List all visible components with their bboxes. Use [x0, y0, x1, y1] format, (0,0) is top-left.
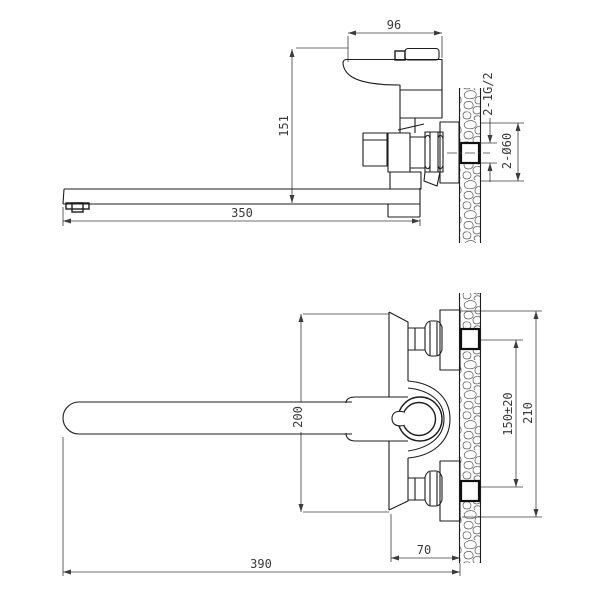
- faucet-technical-drawing: 96 151 350 2-1G/2 2-Ø60: [0, 0, 600, 600]
- faucet-plan-geometry: [63, 310, 479, 521]
- side-view: 96 151 350 2-1G/2 2-Ø60: [63, 18, 524, 243]
- spout-plan: [63, 402, 352, 434]
- dim-200: 200: [291, 314, 389, 512]
- dim-label-390: 390: [250, 557, 272, 571]
- wall-flange-top: [440, 310, 460, 370]
- body-neck: [398, 118, 424, 133]
- inlet-tube-top: [408, 328, 425, 350]
- eccentric-connector: [424, 172, 440, 186]
- dim-350: 350: [63, 206, 420, 226]
- union-body: [388, 133, 410, 172]
- dim-label-200: 200: [291, 406, 305, 428]
- wall-fitting-top: [461, 329, 479, 349]
- dim-label-151: 151: [277, 115, 291, 137]
- inlet-tube-bottom: [408, 478, 425, 500]
- mixer-body: [400, 90, 442, 118]
- dim-label-flange: 2-Ø60: [500, 133, 514, 169]
- dim-label-210: 210: [521, 402, 535, 424]
- dim-label-70: 70: [417, 543, 431, 557]
- dim-thread-2-1g2: 2-1G/2: [479, 72, 497, 182]
- technical-drawing-page: 96 151 350 2-1G/2 2-Ø60: [0, 0, 600, 600]
- handle-button: [395, 51, 405, 60]
- lever-handle: [343, 60, 442, 91]
- knob-pointer: [392, 411, 404, 426]
- dim-151: 151: [277, 48, 348, 203]
- spout-holder: [390, 172, 421, 189]
- dim-label-96: 96: [387, 18, 401, 32]
- dim-150-20: 150±20: [481, 340, 523, 487]
- union-pipe: [410, 137, 425, 168]
- knob-inner: [403, 403, 436, 436]
- dim-390: 390: [63, 437, 460, 576]
- handle-cap: [405, 49, 439, 61]
- dim-label-thread: 2-1G/2: [481, 72, 495, 115]
- dim-label-350: 350: [231, 206, 253, 220]
- wall-flange-bottom: [440, 461, 460, 521]
- check-valve-block: [363, 133, 387, 166]
- dim-flange-2-d60: 2-Ø60: [481, 123, 524, 181]
- plan-view: 200 150±20 210 70 390: [63, 293, 542, 576]
- wall-section-side: [460, 88, 481, 243]
- wall-hatch-side: [460, 88, 480, 243]
- dim-label-150-20: 150±20: [501, 392, 515, 435]
- wall-fitting-bottom: [461, 481, 479, 501]
